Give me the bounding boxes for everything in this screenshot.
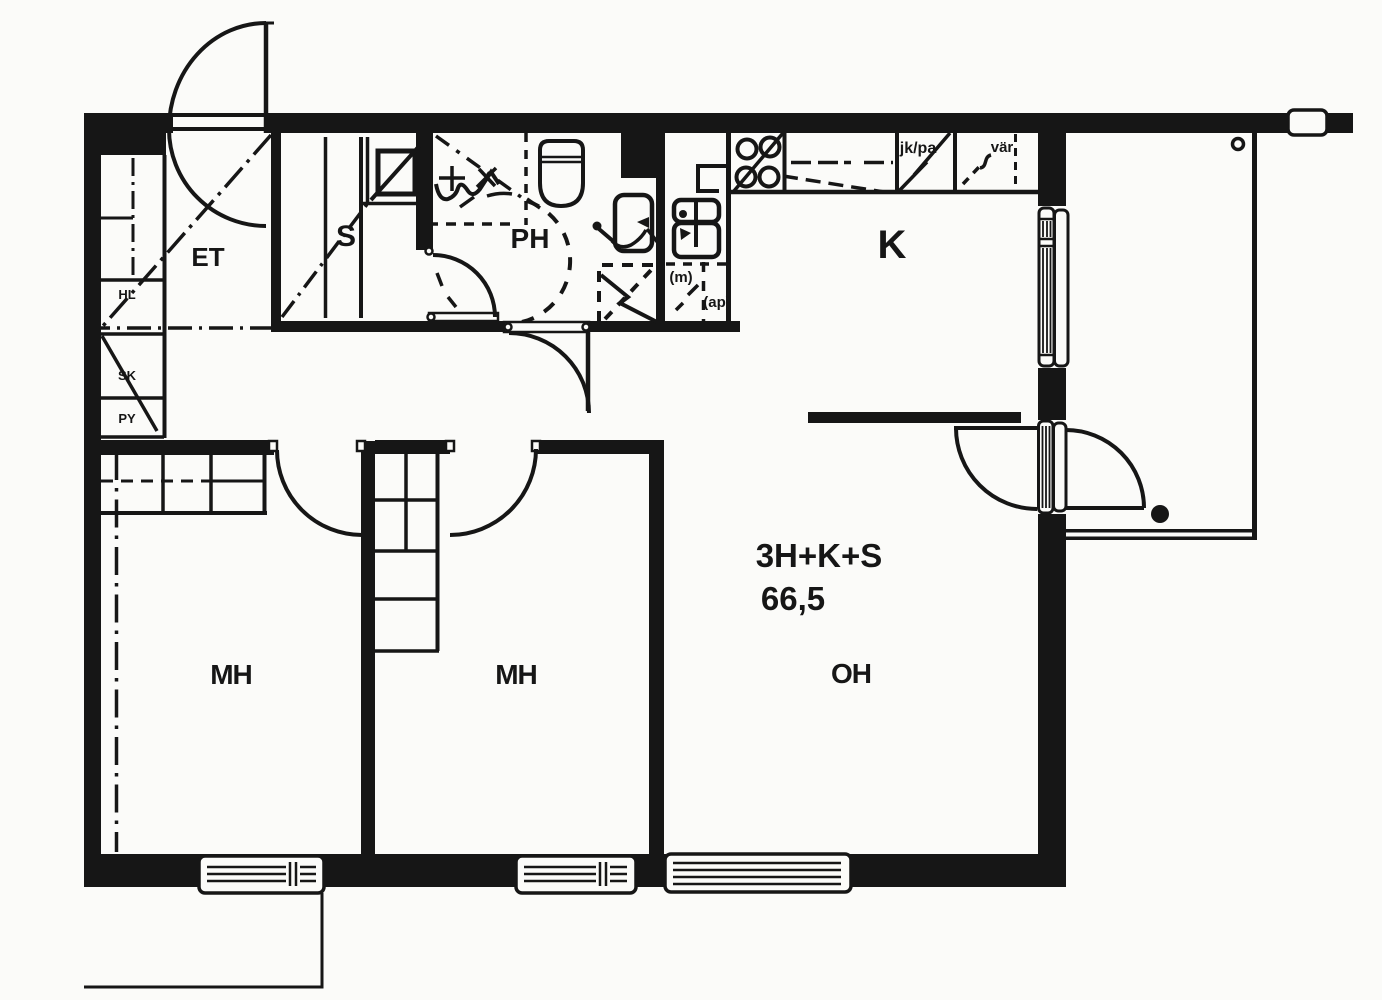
svg-text:MH: MH [495,659,537,690]
svg-text:PH: PH [511,223,550,254]
svg-text:vär: vär [991,139,1014,156]
svg-text:(m): (m) [669,269,692,286]
svg-text:PY: PY [118,411,136,426]
svg-text:3H+K+S: 3H+K+S [756,537,883,574]
svg-text:66,5: 66,5 [761,580,825,617]
svg-text:MH: MH [210,659,252,690]
svg-text:(ap): (ap) [703,294,731,311]
svg-text:OH: OH [831,658,871,689]
svg-text:K: K [878,223,907,267]
svg-text:ET: ET [191,242,224,272]
